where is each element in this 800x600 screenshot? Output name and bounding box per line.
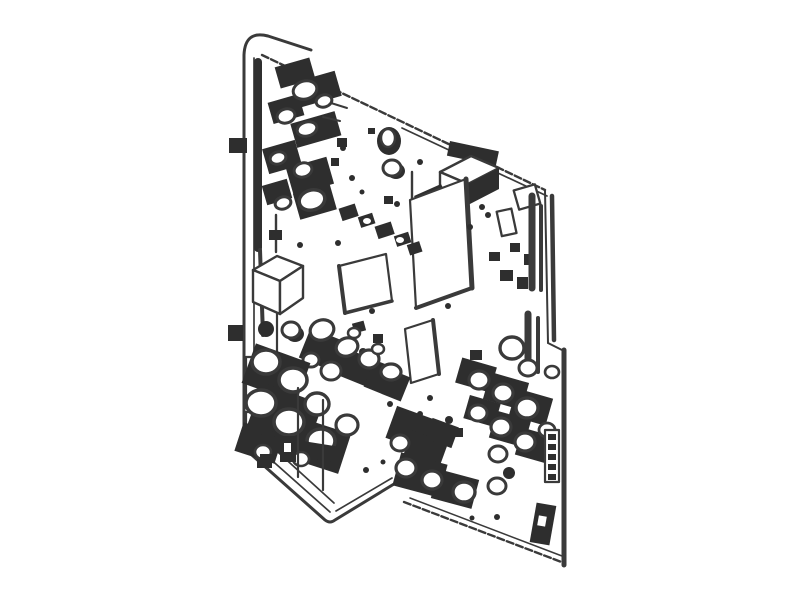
pcb-line-drawing [0,0,800,600]
page-background [0,0,800,600]
circuit-board-illustration [0,0,800,600]
